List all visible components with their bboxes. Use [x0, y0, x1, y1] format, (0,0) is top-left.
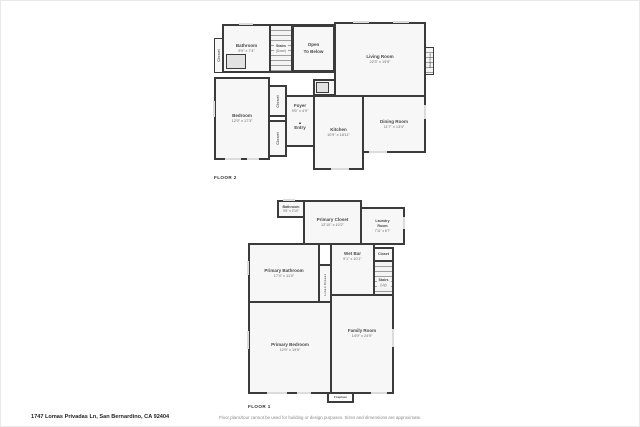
- f2-bathroom-closet-box: [226, 54, 246, 69]
- window: [247, 261, 249, 275]
- room-f2-bedroom: Bedroom 12'9" x 17'3": [214, 77, 270, 160]
- entry-marker: ▲ Entry: [294, 121, 306, 131]
- room-f2-kitchen-closet: [313, 79, 336, 96]
- f2-kitchen-closet-box: [316, 82, 329, 93]
- f1-bathroom-dims: 9'6" x 2'10": [283, 209, 299, 213]
- f2-dining-room-dims: 11'7" x 13'4": [384, 125, 405, 130]
- f1-laundry-room-dims: 7'11" x 8'7": [375, 229, 390, 233]
- f2-closet-a-label: Closet: [276, 95, 280, 108]
- floor-plan-page: Closet Bathroom 9'9" x 7'4" Stairs (Down…: [0, 0, 640, 427]
- f1-fireplace-label: Fireplace: [334, 395, 347, 399]
- window: [369, 151, 387, 153]
- f1-linen-closet-label: Linen Closet: [323, 274, 327, 296]
- room-f1-laundry-room: Laundry Room 7'11" x 8'7": [360, 207, 405, 245]
- f2-living-room-dims: 22'3" x 19'5": [370, 60, 391, 65]
- window: [331, 168, 349, 170]
- window: [424, 105, 426, 119]
- window: [225, 158, 241, 160]
- f1-wet-bar-dims: 9'1" x 10'1": [343, 257, 362, 262]
- room-f1-primary-closet: Primary Closet 12'10" x 10'2": [303, 200, 362, 245]
- room-f2-foyer: Foyer 9'5" x 4'9" ▲ Entry: [285, 95, 315, 147]
- entry-label: Entry: [294, 125, 306, 131]
- room-f2-bathroom: Bathroom 9'9" x 7'4": [222, 24, 271, 73]
- window: [403, 217, 405, 229]
- floor1-label: FLOOR 1: [248, 404, 271, 409]
- f1-family-room-dims: 14'9" x 24'9": [352, 334, 373, 339]
- room-f1-primary-bedroom: Primary Bedroom 12'9" x 19'5": [248, 301, 332, 394]
- f1-primary-bedroom-dims: 12'9" x 19'5": [280, 348, 301, 353]
- window: [247, 331, 249, 349]
- room-f2-living-room: Living Room 22'3" x 19'5": [334, 22, 426, 97]
- exterior-staircase: Staircase: [425, 47, 434, 75]
- f2-closet-left-label: Closet: [217, 49, 221, 62]
- f1-closet-top-label: Closet: [378, 252, 389, 257]
- room-f1-fireplace: Fireplace: [327, 392, 354, 403]
- f2-stairs-down-label: Stairs (Down): [274, 43, 288, 54]
- window: [239, 23, 253, 25]
- f2-open-to-below-line2: To Below: [304, 49, 324, 55]
- room-f1-family-room: Family Room 14'9" x 24'9": [330, 294, 394, 394]
- window: [247, 158, 259, 160]
- window: [393, 21, 409, 23]
- f1-primary-closet-dims: 12'10" x 10'2": [321, 223, 344, 228]
- window: [213, 101, 215, 117]
- f1-laundry-room-label: Laundry Room: [372, 219, 394, 229]
- window: [297, 392, 311, 394]
- f2-bedroom-dims: 12'9" x 17'3": [232, 119, 253, 124]
- room-f1-primary-bathroom: Primary Bathroom 17'4" x 11'0": [248, 243, 320, 303]
- window: [392, 329, 394, 347]
- f2-closet-b-label: Closet: [276, 132, 280, 145]
- f1-primary-bathroom-dims: 17'4" x 11'0": [274, 274, 295, 279]
- window: [371, 392, 387, 394]
- room-f2-open-to-below: Open To Below: [291, 24, 336, 73]
- window: [267, 392, 287, 394]
- window: [283, 199, 295, 201]
- floor2-label: FLOOR 2: [214, 175, 237, 180]
- window: [353, 21, 369, 23]
- f2-staircase-label: Staircase: [428, 53, 432, 68]
- room-f2-stairs-down: Stairs (Down): [269, 24, 293, 73]
- f2-kitchen-dims: 10'9" x 18'11": [327, 133, 350, 138]
- f1-stairs-up-label: Stairs (Up): [377, 277, 391, 288]
- room-f2-dining-room: Dining Room 11'7" x 13'4": [362, 95, 426, 153]
- f2-foyer-dims: 9'5" x 4'9": [292, 109, 309, 114]
- room-f1-bathroom: Bathroom 9'6" x 2'10": [277, 200, 305, 218]
- room-f2-kitchen: Kitchen 10'9" x 18'11": [313, 95, 364, 170]
- property-address: 1747 Lomas Privadas Ln, San Bernardino, …: [31, 414, 169, 420]
- disclaimer-text: Floor plans/tour cannot be used for buil…: [219, 415, 421, 420]
